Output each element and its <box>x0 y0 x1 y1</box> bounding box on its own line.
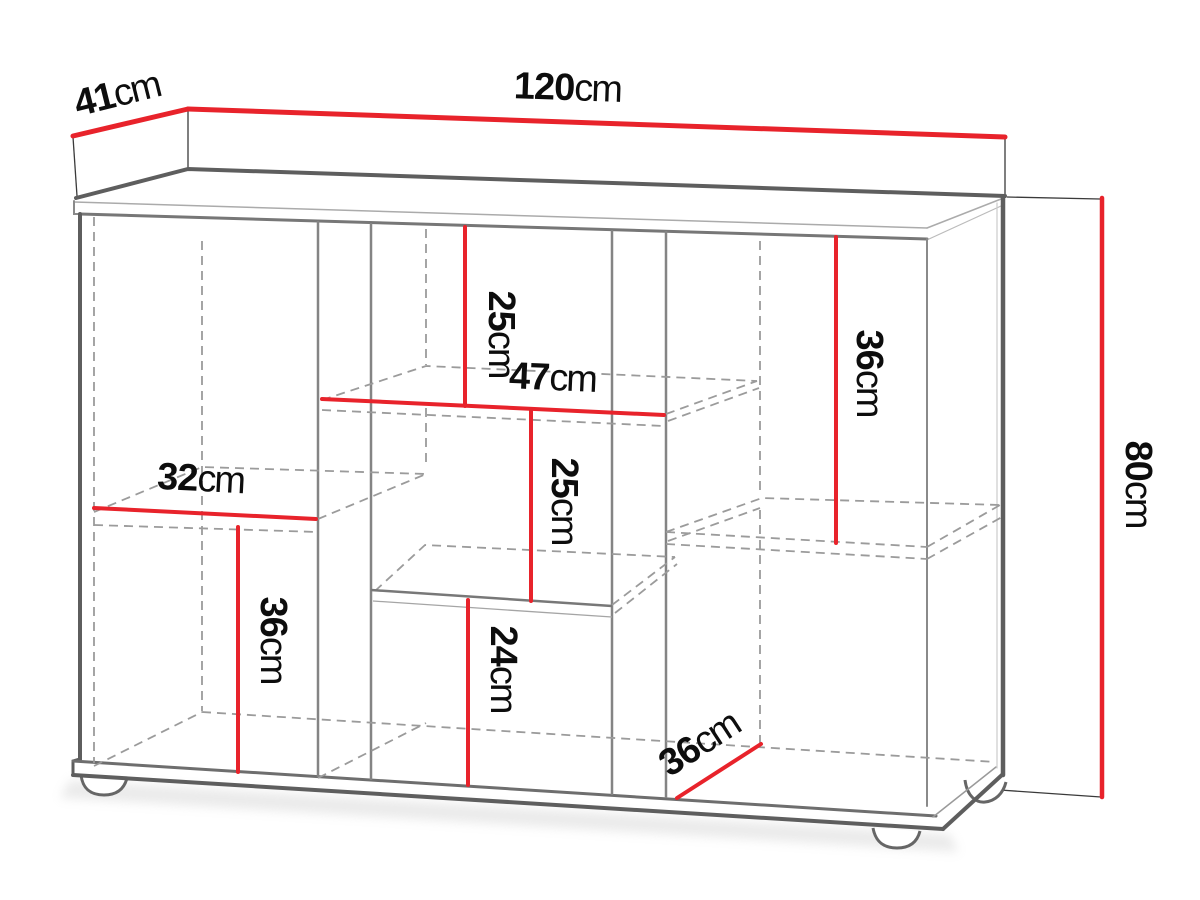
label-47: 47cm <box>508 355 597 401</box>
middle-shelf-front <box>371 590 612 617</box>
top-panel-left-notch <box>74 201 80 214</box>
shelf-32-top <box>94 467 426 512</box>
interior-ceiling-edge <box>80 214 927 239</box>
top-panel-back-edge <box>76 169 1005 198</box>
label-height-80: 80cm <box>1117 441 1159 528</box>
shelf-right-right-diag <box>927 505 1000 547</box>
shelf-right-underside <box>666 544 927 559</box>
floor-shadow <box>60 780 958 852</box>
dim-line-32 <box>94 508 316 519</box>
floor-left-diagonal <box>94 712 202 766</box>
dim-line-width-120 <box>188 109 1005 137</box>
shelf-right-top <box>666 498 1000 532</box>
dimension-lines <box>73 109 1102 798</box>
label-36-left: 36cm <box>252 597 294 684</box>
label-36-right: 36cm <box>848 330 890 417</box>
shelf-mid-top <box>375 545 675 591</box>
label-24: 24cm <box>482 626 524 713</box>
label-width-120: 120cm <box>513 65 622 111</box>
dimension-diagram: 41cm 120cm 80cm 25cm 47cm 25cm 36cm 32cm… <box>0 0 1200 900</box>
label-32: 32cm <box>156 456 245 503</box>
sideboard-drawing: 41cm 120cm 80cm 25cm 47cm 25cm 36cm 32cm… <box>0 0 1200 900</box>
top-panel-right-edge <box>927 199 1001 228</box>
shelf-mid-right-diag2 <box>615 564 677 613</box>
dimension-connectors <box>73 110 1101 797</box>
top-panel-front-edge <box>74 202 927 228</box>
shelf-32-front-underside <box>94 525 318 532</box>
label-25-mid: 25cm <box>543 458 585 545</box>
shelf-right-underside-diag <box>927 517 1002 559</box>
shelf-right-front <box>666 532 927 547</box>
shelf-47-right-diag <box>666 381 757 414</box>
floor-back-edge <box>202 712 995 762</box>
shelf-47-right-diag2 <box>668 388 759 421</box>
